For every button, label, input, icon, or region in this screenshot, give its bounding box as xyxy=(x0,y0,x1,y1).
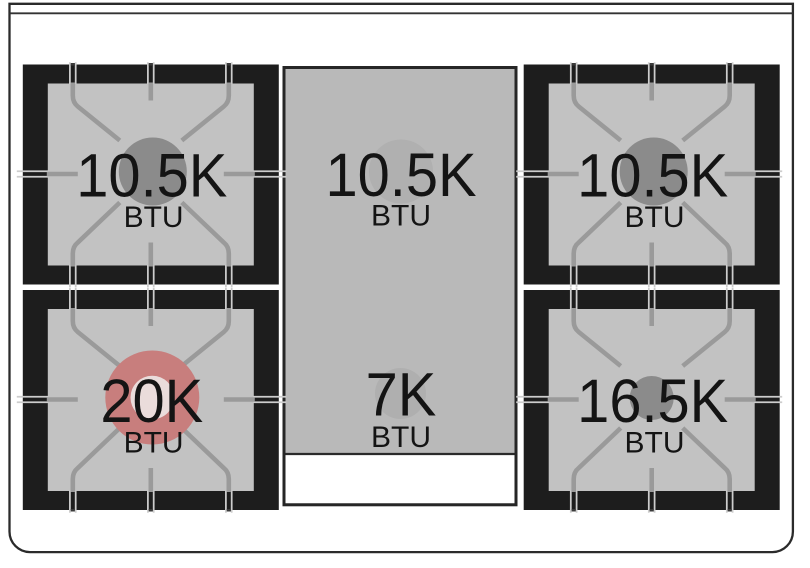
svg-text:BTU: BTU xyxy=(124,427,184,460)
svg-text:BTU: BTU xyxy=(625,427,685,460)
svg-text:16.5K: 16.5K xyxy=(577,366,728,435)
svg-text:10.5K: 10.5K xyxy=(577,141,728,210)
svg-text:BTU: BTU xyxy=(371,200,431,233)
svg-text:7K: 7K xyxy=(366,360,437,429)
svg-text:BTU: BTU xyxy=(124,201,184,234)
svg-text:20K: 20K xyxy=(100,366,203,435)
svg-text:BTU: BTU xyxy=(625,201,685,234)
svg-text:10.5K: 10.5K xyxy=(76,141,227,210)
svg-text:BTU: BTU xyxy=(371,421,431,454)
